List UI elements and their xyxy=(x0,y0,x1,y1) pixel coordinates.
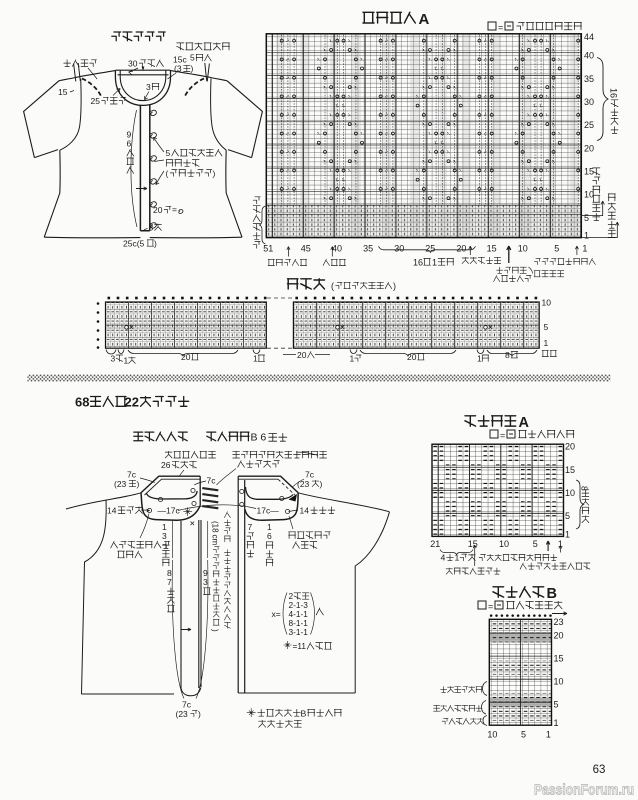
svg-text:): ) xyxy=(393,281,396,291)
svg-text:17c—: 17c— xyxy=(257,506,280,516)
svg-text:68: 68 xyxy=(75,395,89,410)
svg-text:20: 20 xyxy=(407,352,417,362)
svg-text:51: 51 xyxy=(263,244,273,254)
svg-text:(23: (23 xyxy=(297,479,310,489)
svg-text:20: 20 xyxy=(554,631,564,641)
svg-text:25c(5: 25c(5 xyxy=(123,239,145,249)
svg-text:8: 8 xyxy=(149,223,154,233)
svg-text:=: = xyxy=(488,602,493,612)
svg-text:): ) xyxy=(198,709,201,719)
svg-text:): ) xyxy=(154,239,157,249)
svg-text:20: 20 xyxy=(565,442,575,452)
svg-text:7c: 7c xyxy=(207,476,217,486)
svg-text:B: B xyxy=(547,586,557,602)
svg-text:16: 16 xyxy=(609,88,619,98)
svg-text:(: ( xyxy=(331,281,334,291)
svg-text:44: 44 xyxy=(584,32,594,42)
svg-text:): ) xyxy=(320,479,323,489)
svg-text:20: 20 xyxy=(297,350,307,360)
svg-text:=: = xyxy=(172,205,177,215)
svg-text:B 6: B 6 xyxy=(251,432,267,444)
svg-text:5: 5 xyxy=(554,700,559,710)
svg-text:5: 5 xyxy=(584,213,589,223)
svg-text:8: 8 xyxy=(505,350,510,360)
svg-text:(23: (23 xyxy=(114,479,127,489)
svg-text:=11: =11 xyxy=(293,641,307,651)
svg-text:1: 1 xyxy=(477,354,482,364)
svg-text:B: B xyxy=(301,709,307,719)
svg-text:3: 3 xyxy=(203,577,208,587)
svg-text:21: 21 xyxy=(430,539,440,549)
svg-text:5: 5 xyxy=(166,148,171,158)
svg-text:=: = xyxy=(500,431,505,441)
svg-text:5: 5 xyxy=(521,730,526,740)
svg-text:7: 7 xyxy=(167,577,172,587)
svg-text:(: ( xyxy=(166,169,169,179)
svg-text:26: 26 xyxy=(161,460,171,470)
svg-text:1: 1 xyxy=(584,231,589,241)
svg-text:1: 1 xyxy=(350,354,355,364)
svg-text:4: 4 xyxy=(441,553,446,563)
svg-text:40: 40 xyxy=(584,51,594,61)
svg-text:x=: x= xyxy=(272,609,281,619)
svg-text:15: 15 xyxy=(58,87,68,97)
svg-text:PassionForum.ru: PassionForum.ru xyxy=(534,782,634,799)
svg-text:10: 10 xyxy=(565,488,575,498)
svg-text:5: 5 xyxy=(533,539,538,549)
svg-text:3: 3 xyxy=(162,531,167,541)
svg-text:30: 30 xyxy=(394,244,404,254)
svg-text:5: 5 xyxy=(190,53,195,63)
svg-text:1: 1 xyxy=(253,354,258,364)
svg-text:7: 7 xyxy=(248,522,253,532)
svg-text:7c: 7c xyxy=(182,700,192,710)
svg-text:A: A xyxy=(519,415,530,431)
svg-text:): ) xyxy=(191,64,194,74)
svg-text:): ) xyxy=(137,479,140,489)
svg-text:10: 10 xyxy=(584,190,594,200)
svg-text:1: 1 xyxy=(554,718,559,728)
svg-text:10: 10 xyxy=(518,244,528,254)
svg-text:1: 1 xyxy=(544,338,549,348)
svg-text:7c: 7c xyxy=(127,470,137,480)
svg-text:cm: cm xyxy=(210,535,219,546)
svg-text:25: 25 xyxy=(91,96,101,106)
svg-text:1: 1 xyxy=(455,553,460,563)
svg-text:1: 1 xyxy=(432,258,437,268)
svg-text:3: 3 xyxy=(111,354,116,364)
svg-text:=: = xyxy=(498,23,503,33)
svg-text:10: 10 xyxy=(487,730,497,740)
svg-text:15: 15 xyxy=(554,654,564,664)
svg-text:7c: 7c xyxy=(305,470,315,480)
svg-text:16: 16 xyxy=(413,258,423,268)
svg-text:23: 23 xyxy=(554,617,564,627)
svg-text:22: 22 xyxy=(125,395,139,410)
svg-text:(23: (23 xyxy=(176,709,189,719)
svg-text:30: 30 xyxy=(584,97,594,107)
svg-text:10: 10 xyxy=(554,677,564,687)
svg-text:5: 5 xyxy=(565,511,570,521)
svg-text:30: 30 xyxy=(128,59,138,69)
svg-text:): ) xyxy=(213,169,216,179)
svg-text:1: 1 xyxy=(565,529,570,539)
svg-text:15: 15 xyxy=(565,465,575,475)
svg-text:20: 20 xyxy=(456,244,466,254)
svg-text:(18: (18 xyxy=(211,521,220,533)
svg-text:8: 8 xyxy=(580,486,590,491)
svg-text:35: 35 xyxy=(363,244,373,254)
svg-text:14: 14 xyxy=(107,506,117,516)
svg-text:25: 25 xyxy=(584,120,594,130)
svg-text:5: 5 xyxy=(554,244,559,254)
svg-text:5: 5 xyxy=(544,322,549,332)
svg-text:63: 63 xyxy=(593,764,606,776)
svg-text:35: 35 xyxy=(584,74,594,84)
svg-text:3: 3 xyxy=(146,82,151,92)
svg-text:20: 20 xyxy=(181,352,191,362)
svg-text:(3: (3 xyxy=(174,64,182,74)
svg-text:20: 20 xyxy=(153,205,163,215)
svg-text:A: A xyxy=(419,11,430,28)
svg-text:—17c: —17c xyxy=(158,506,181,516)
svg-text:10: 10 xyxy=(542,298,552,308)
svg-text:6: 6 xyxy=(127,139,132,149)
svg-text:1: 1 xyxy=(546,730,551,740)
svg-text:10: 10 xyxy=(499,539,509,549)
svg-text:3-1-1: 3-1-1 xyxy=(289,627,309,637)
svg-text:20: 20 xyxy=(584,143,594,153)
svg-text:): ) xyxy=(211,629,220,632)
svg-text:15: 15 xyxy=(468,539,478,549)
svg-text:1: 1 xyxy=(124,356,129,366)
svg-text:15: 15 xyxy=(487,244,497,254)
svg-text:1: 1 xyxy=(582,244,587,254)
svg-text:45: 45 xyxy=(301,244,311,254)
svg-text:6: 6 xyxy=(267,531,272,541)
svg-text:14: 14 xyxy=(300,506,310,516)
